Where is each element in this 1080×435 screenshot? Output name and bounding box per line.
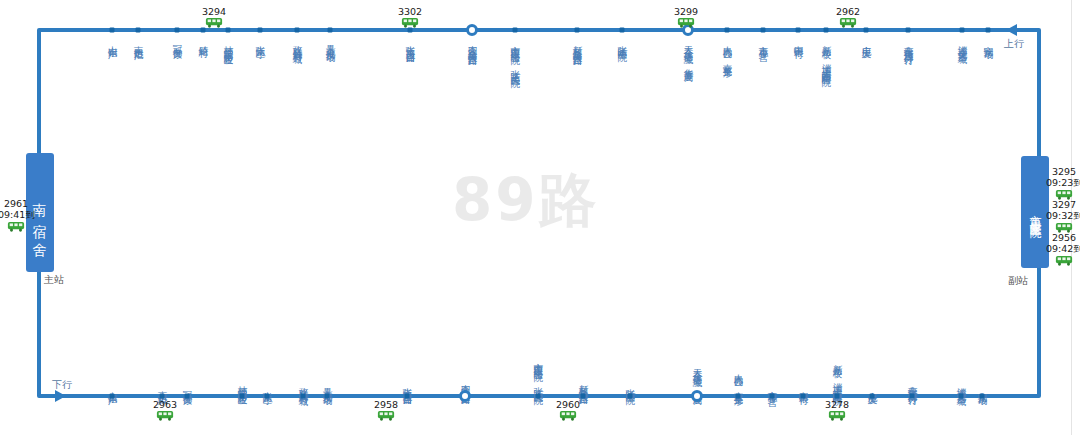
station-dot[interactable] <box>910 394 915 399</box>
station-dot[interactable] <box>301 394 306 399</box>
station-dot[interactable] <box>620 28 625 33</box>
bus-icon <box>677 17 695 28</box>
bus-marker[interactable]: 2958 <box>368 400 404 421</box>
station-dot[interactable] <box>258 28 263 33</box>
station-dot[interactable] <box>870 394 875 399</box>
station-dot[interactable] <box>960 28 965 33</box>
station-label[interactable]: 中国银行 <box>797 384 810 390</box>
arrival-bus-id: 2956 <box>1046 232 1080 243</box>
station-circle-marker[interactable] <box>691 390 703 402</box>
arrival-bus-id: 3295 <box>1046 166 1080 177</box>
station-dot[interactable] <box>325 394 330 399</box>
bus-marker[interactable]: 2962 <box>830 7 866 28</box>
station-label[interactable]: 淄博文化艺术城 <box>956 38 969 49</box>
station-dot[interactable] <box>581 394 586 399</box>
station-dot[interactable] <box>240 394 245 399</box>
station-dot[interactable] <box>265 394 270 399</box>
arrival-bus-id: 3297 <box>1046 199 1080 210</box>
station-label[interactable]: 东营银行淄博分行 <box>902 38 915 50</box>
bus-icon <box>559 410 577 421</box>
bus-icon <box>839 17 857 28</box>
station-dot[interactable] <box>628 394 633 399</box>
bus-id-label: 2960 <box>550 400 586 410</box>
station-dot[interactable] <box>110 394 115 399</box>
station-label[interactable]: 杏园路金晶大道路口 <box>466 38 479 52</box>
station-label[interactable]: 山东铝厂 <box>106 38 119 44</box>
station-label[interactable]: 市青少年宫 <box>757 38 770 46</box>
station-label[interactable]: 果蔬批发市场 <box>321 381 334 390</box>
station-dot[interactable] <box>770 394 775 399</box>
bus-icon <box>7 221 25 232</box>
station-label[interactable]: 南定热电厂 <box>156 383 169 391</box>
station-dot[interactable] <box>986 28 991 33</box>
station-dot[interactable] <box>226 28 231 33</box>
station-label[interactable]: 张南小区 <box>254 38 267 44</box>
arrival-time: 09:41到 <box>0 209 34 220</box>
station-label[interactable]: 人民公园-壹美整形 <box>721 38 734 63</box>
bus-icon <box>156 410 174 421</box>
station-label[interactable]: 技师学院南定校区 <box>222 38 235 50</box>
station-dot[interactable] <box>801 394 806 399</box>
station-dot[interactable] <box>761 28 766 33</box>
bus-id-label: 3294 <box>196 7 232 17</box>
arrival-time: 09:32到 <box>1046 210 1080 221</box>
station-label[interactable]: 东营银行淄博分行 <box>906 378 919 390</box>
station-label[interactable]: 新村路金晶大道路口 <box>571 38 584 52</box>
station-dot[interactable] <box>175 28 180 33</box>
arrival-item[interactable]: 329509:23到 <box>1046 166 1080 200</box>
terminal-right-name: 市第二康复医院 <box>1027 205 1044 219</box>
bus-id-label: 3302 <box>392 7 428 17</box>
station-dot[interactable] <box>796 28 801 33</box>
bus-id-label: 2963 <box>147 400 183 410</box>
station-label[interactable]: 张店区中医院 <box>616 38 629 47</box>
bus-icon <box>401 17 419 28</box>
station-label[interactable]: 南定热电厂 <box>132 38 145 46</box>
station-dot[interactable] <box>835 394 840 399</box>
station-label[interactable]: 腈纶村 <box>197 38 210 43</box>
station-label[interactable]: 市中西医结合医院-张店区人民医院 <box>532 355 545 390</box>
bus-id-label: 3278 <box>819 400 855 410</box>
station-dot[interactable] <box>408 28 413 33</box>
bus-marker[interactable]: 3302 <box>392 7 428 28</box>
station-label[interactable]: 张店区中医院 <box>624 381 637 390</box>
sub-station-label: 副站 <box>1008 274 1028 288</box>
arrival-bus-id: 2961 <box>0 198 34 209</box>
station-label[interactable]: 张南小区 <box>261 384 274 390</box>
station-label[interactable]: 杏园路金晶大道路口 <box>459 377 472 391</box>
arrival-item[interactable]: 296109:41到 <box>0 198 34 232</box>
station-dot[interactable] <box>328 28 333 33</box>
station-label[interactable]: 冠良御景 <box>181 384 194 390</box>
bus-id-label: 2958 <box>368 400 404 410</box>
bus-marker[interactable]: 2960 <box>550 400 586 421</box>
station-dot[interactable] <box>136 28 141 33</box>
bus-icon <box>828 410 846 421</box>
station-dot[interactable] <box>405 394 410 399</box>
station-dot[interactable] <box>160 394 165 399</box>
station-label[interactable]: 天泰金店珠宝城-华喜商厦 <box>682 38 695 67</box>
bus-id-label: 2962 <box>830 7 866 17</box>
station-label[interactable]: 广电大厦 <box>860 38 873 44</box>
station-label[interactable]: 广电大厦 <box>866 384 879 390</box>
arrival-time: 09:23到 <box>1046 177 1080 188</box>
station-circle-marker[interactable] <box>466 24 478 36</box>
upbound-direction-label: 上行 <box>1004 37 1024 51</box>
station-dot[interactable] <box>536 394 541 399</box>
upbound-direction-arrow-icon <box>1006 24 1017 36</box>
bus-icon <box>1055 255 1073 266</box>
main-station-label: 主站 <box>44 273 64 287</box>
station-label[interactable]: 冠良御景 <box>171 38 184 44</box>
station-dot[interactable] <box>575 28 580 33</box>
bus-marker[interactable]: 3294 <box>196 7 232 28</box>
bus-marker[interactable]: 3278 <box>819 400 855 421</box>
station-label[interactable]: 天泰金店珠宝城-华喜商厦 <box>691 361 704 390</box>
station-dot[interactable] <box>906 28 911 33</box>
bus-marker[interactable]: 3299 <box>668 7 704 28</box>
station-label[interactable]: 山东铝厂 <box>106 384 119 390</box>
station-dot[interactable] <box>980 394 985 399</box>
station-dot[interactable] <box>201 28 206 33</box>
station-label[interactable]: 新元学校-淄博正大光明眼科医院 <box>820 38 833 72</box>
station-label[interactable]: 新元学校-淄博正大光明眼科医院 <box>831 357 844 391</box>
station-label[interactable]: 中国银行 <box>792 38 805 44</box>
arrival-time: 09:42到 <box>1046 243 1080 254</box>
station-dot[interactable] <box>824 28 829 33</box>
station-dot[interactable] <box>725 28 730 33</box>
downbound-direction-label: 下行 <box>52 378 72 392</box>
station-label[interactable]: 技师学院南定校区 <box>236 378 249 390</box>
station-label[interactable]: 政联装饰材料城 <box>297 380 310 391</box>
station-circle-marker[interactable] <box>459 390 471 402</box>
station-label[interactable]: 市中西医结合医院-张店区人民医院 <box>509 38 522 73</box>
station-label[interactable]: 宠物市场 <box>982 38 995 44</box>
terminal-right-second-rehab-hospital[interactable]: 市第二康复医院 <box>1021 156 1049 268</box>
station-label[interactable]: 新村路金晶大道路口 <box>577 377 590 391</box>
station-label[interactable]: 果蔬批发市场 <box>324 38 337 47</box>
station-dot[interactable] <box>736 394 741 399</box>
station-dot[interactable] <box>185 394 190 399</box>
station-label[interactable]: 人民公园-壹美整形 <box>732 366 745 391</box>
station-label[interactable]: 张南路玉斋路口 <box>404 38 417 49</box>
station-label[interactable]: 张南路玉斋路口 <box>401 380 414 391</box>
station-dot[interactable] <box>295 28 300 33</box>
station-label[interactable]: 淄博文化艺术城 <box>955 380 968 391</box>
station-label[interactable]: 市青少年宫 <box>766 383 779 391</box>
arrival-item[interactable]: 329709:32到 <box>1046 199 1080 233</box>
station-label[interactable]: 宠物市场 <box>976 384 989 390</box>
bus-marker[interactable]: 2963 <box>147 400 183 421</box>
station-dot[interactable] <box>864 28 869 33</box>
bus-id-label: 3299 <box>668 7 704 17</box>
route-loop-line <box>37 28 1041 398</box>
station-label[interactable]: 政联装饰材料城 <box>291 38 304 49</box>
bus-route-diagram: 89路 上行 下行 南宿舍 主站 市第二康复医院 副站 山东铝厂南定热电厂冠良御… <box>0 0 1080 435</box>
bus-icon <box>205 17 223 28</box>
arrival-item[interactable]: 295609:42到 <box>1046 232 1080 266</box>
bus-icon <box>377 410 395 421</box>
station-dot[interactable] <box>959 394 964 399</box>
station-dot[interactable] <box>513 28 518 33</box>
station-dot[interactable] <box>110 28 115 33</box>
